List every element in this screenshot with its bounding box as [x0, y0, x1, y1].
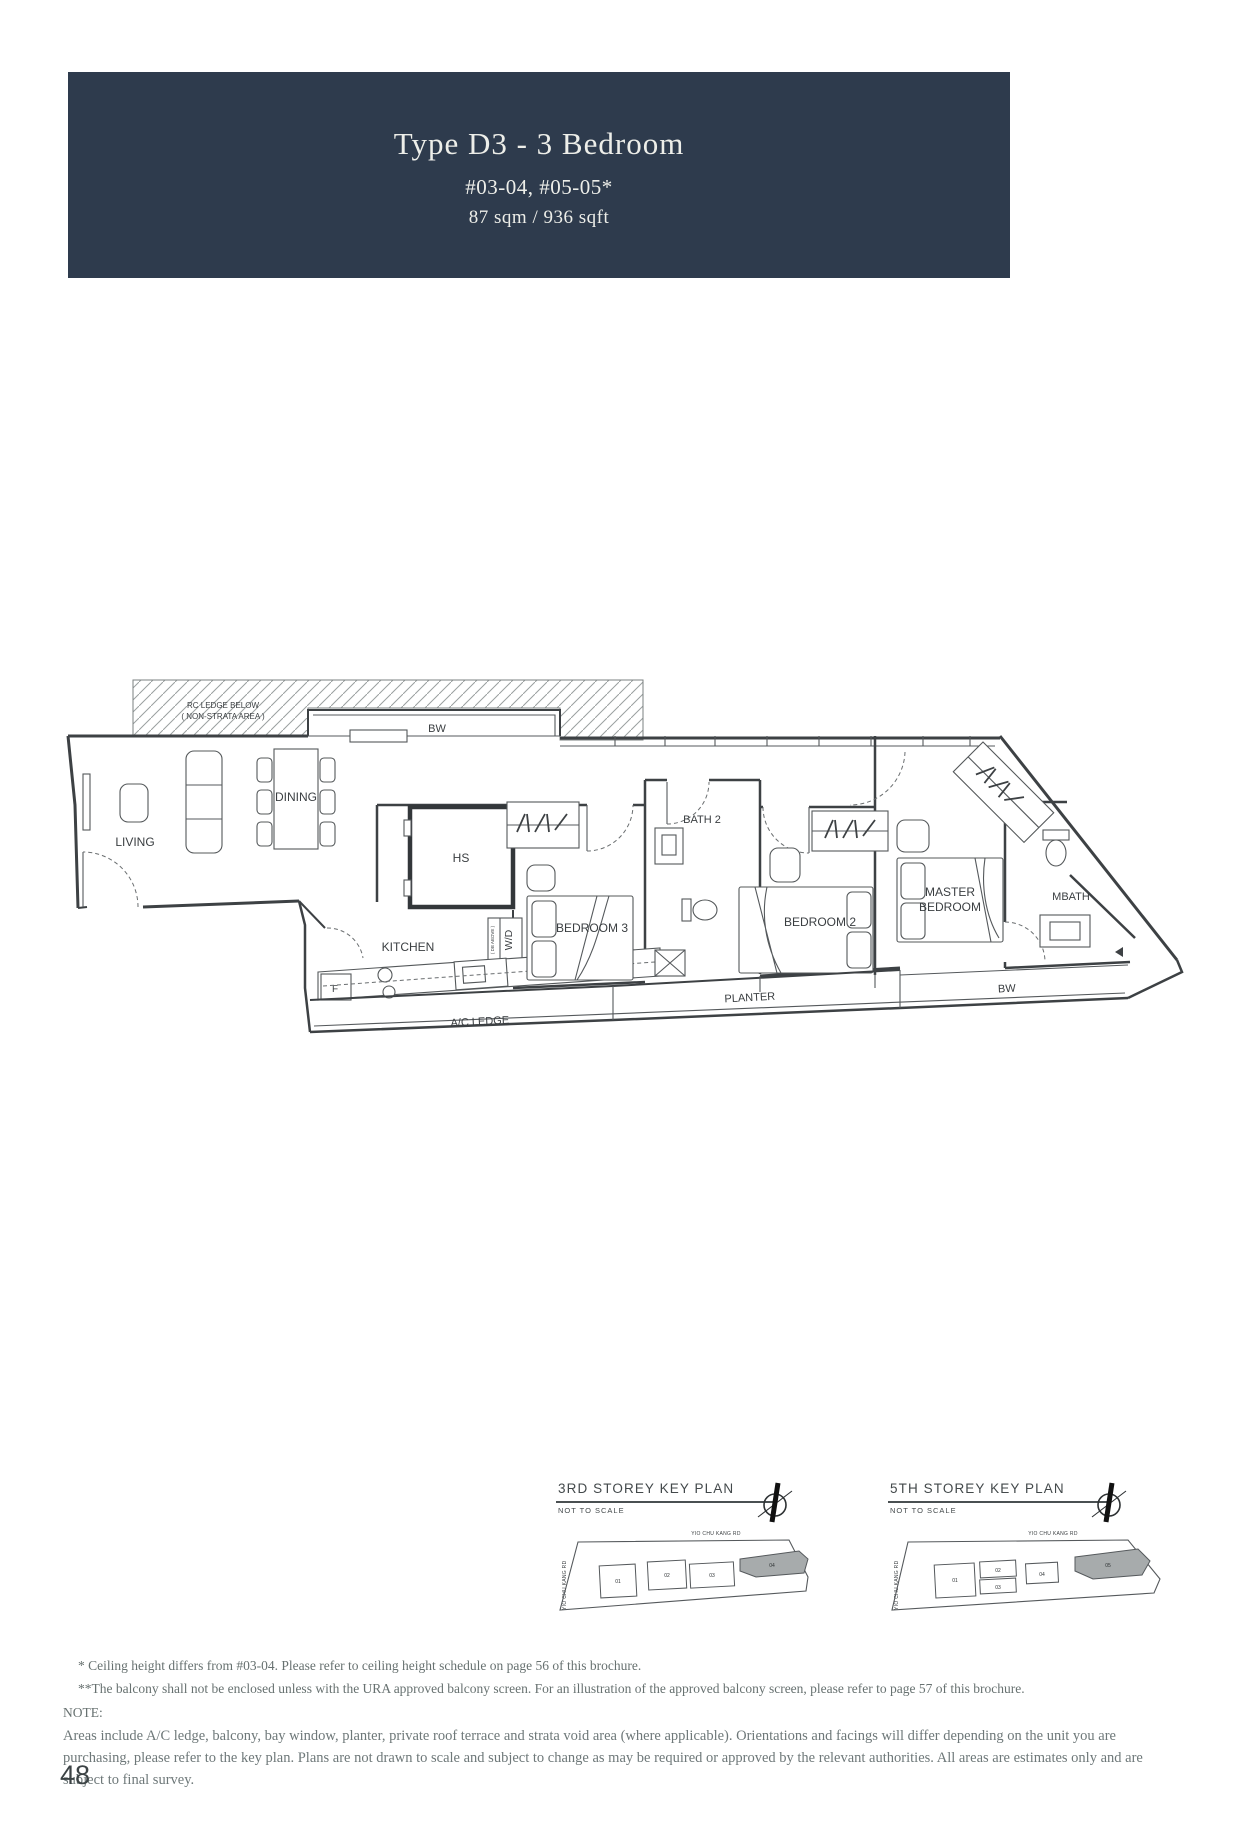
- bw-top-label: BW: [428, 723, 446, 735]
- unit-label: 03: [995, 1585, 1001, 1591]
- unit-label: 02: [664, 1573, 670, 1579]
- planter-label: PLANTER: [724, 991, 775, 1006]
- key-plan-map: YIO CHU KANG RD YIO CHU KANG RD 01 02 03…: [888, 1525, 1168, 1625]
- brochure-page: Type D3 - 3 Bedroom #03-04, #05-05* 87 s…: [0, 0, 1240, 1831]
- footnote-balcony: **The balcony shall not be enclosed unle…: [78, 1678, 1198, 1701]
- page-number: 48: [60, 1760, 90, 1791]
- road-label-top: YIO CHU KANG RD: [691, 1531, 741, 1537]
- mbath-label: MBATH: [1052, 891, 1090, 903]
- floor-plan: RC LEDGE BELOW ( NON-STRATA AREA ) BW: [55, 670, 1195, 1070]
- hs-label: HS: [453, 851, 470, 865]
- road-label-top: YIO CHU KANG RD: [1028, 1531, 1078, 1537]
- rc-ledge-label: RC LEDGE BELOW: [187, 701, 259, 710]
- note-heading: NOTE:: [63, 1705, 1185, 1721]
- unit-label: 04: [1039, 1572, 1045, 1578]
- master-bedroom-label: MASTER: [925, 885, 975, 899]
- master-bed: [897, 820, 1003, 942]
- bw-bottom-label: BW: [998, 983, 1017, 996]
- key-plan-title: 3RD STOREY KEY PLAN: [558, 1481, 734, 1496]
- svg-text:W/D: W/D: [503, 929, 515, 950]
- not-to-scale-label: NOT TO SCALE: [890, 1506, 957, 1515]
- unit-label: 02: [995, 1568, 1001, 1574]
- not-to-scale-label: NOT TO SCALE: [558, 1506, 625, 1515]
- kitchen-label: KITCHEN: [382, 940, 435, 954]
- unit-label: 01: [615, 1579, 621, 1585]
- compass-icon: [753, 1480, 797, 1524]
- master-wardrobe: [953, 742, 1053, 842]
- washer-dryer: ( DB ABOVE ) W/D: [488, 918, 522, 962]
- unit-label: 04: [769, 1563, 775, 1569]
- svg-text:( DB ABOVE ): ( DB ABOVE ): [490, 925, 495, 954]
- ac-ledge-label: A/C LEDGE: [450, 1014, 509, 1029]
- highlighted-unit-05: [1075, 1549, 1150, 1579]
- unit-area: 87 sqm / 936 sqft: [68, 200, 1010, 229]
- bedroom2-wardrobe: [812, 811, 888, 851]
- compass-icon: [1087, 1480, 1131, 1524]
- bedroom3-label: BEDROOM 3: [556, 921, 628, 935]
- floor-plan-drawing: RC LEDGE BELOW ( NON-STRATA AREA ) BW: [55, 670, 1195, 1070]
- bedroom3-wardrobe: [507, 802, 579, 848]
- title-underline: [556, 1501, 776, 1503]
- note-body: Areas include A/C ledge, balcony, bay wi…: [63, 1725, 1185, 1791]
- key-plan-map: YIO CHU KANG RD YIO CHU KANG RD 01 02 03…: [556, 1525, 826, 1625]
- unit-numbers: #03-04, #05-05*: [68, 162, 1010, 200]
- footnote-ceiling-height: * Ceiling height differs from #03-04. Pl…: [78, 1655, 1198, 1678]
- rc-ledge-label-2: ( NON-STRATA AREA ): [181, 712, 265, 721]
- unit-label: 01: [952, 1578, 958, 1584]
- living-label: LIVING: [115, 835, 154, 849]
- title-underline: [888, 1501, 1108, 1503]
- bath2-label: BATH 2: [683, 814, 721, 826]
- unit-label: 05: [1105, 1563, 1111, 1569]
- note-block: NOTE: Areas include A/C ledge, balcony, …: [63, 1705, 1185, 1791]
- bedroom2-label: BEDROOM 2: [784, 915, 856, 929]
- footnotes: * Ceiling height differs from #03-04. Pl…: [78, 1655, 1198, 1700]
- sofa: [186, 751, 222, 853]
- bath2-fixtures: [655, 828, 717, 921]
- page-title: Type D3 - 3 Bedroom: [68, 72, 1010, 162]
- armchair: [120, 784, 148, 822]
- unit-type-header: Type D3 - 3 Bedroom #03-04, #05-05* 87 s…: [68, 72, 1010, 278]
- key-plan-title: 5TH STOREY KEY PLAN: [890, 1481, 1065, 1496]
- dining-label: DINING: [275, 790, 317, 804]
- master-bedroom-label-2: BEDROOM: [919, 900, 981, 914]
- unit-label: 03: [709, 1573, 715, 1579]
- road-label-left: YIO CHU KANG RD: [894, 1560, 900, 1610]
